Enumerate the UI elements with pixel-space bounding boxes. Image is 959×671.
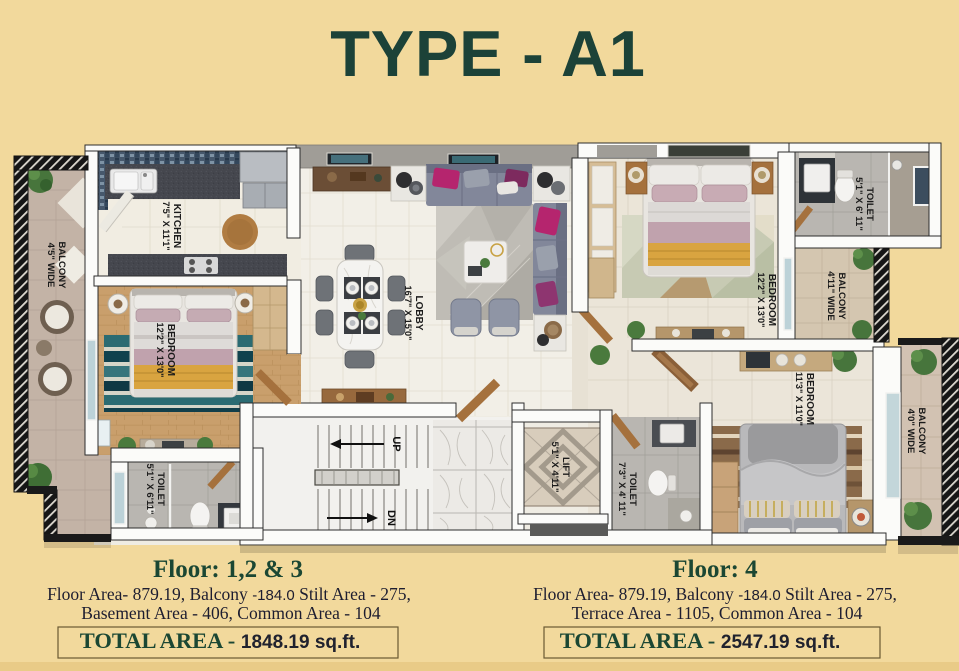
svg-text:Floor Area- 879.19, Balcony -1: Floor Area- 879.19, Balcony -184.0 Stilt… <box>533 584 897 604</box>
svg-text:Basement Area - 406, Common Ar: Basement Area - 406, Common Area - 104 <box>81 603 381 623</box>
svg-text:TOTAL AREA - 1848.19 sq.ft.: TOTAL AREA - 1848.19 sq.ft. <box>80 628 360 653</box>
svg-text:Floor: 4: Floor: 4 <box>672 556 758 583</box>
svg-text:BEDROOM11'3" X 11'0": BEDROOM11'3" X 11'0" <box>794 372 815 426</box>
svg-text:Floor: 1,2 & 3: Floor: 1,2 & 3 <box>153 556 303 583</box>
svg-text:BALCONY4'5" WIDE: BALCONY4'5" WIDE <box>45 242 67 290</box>
svg-text:TYPE - A1: TYPE - A1 <box>330 17 645 90</box>
svg-text:UP: UP <box>390 436 402 451</box>
svg-text:Terrace Area - 1105, Common Ar: Terrace Area - 1105, Common Area - 104 <box>572 603 863 623</box>
svg-text:BALCONY4'0" WIDE: BALCONY4'0" WIDE <box>905 408 927 456</box>
svg-text:BALCONY4'11" WIDE: BALCONY4'11" WIDE <box>825 271 847 321</box>
svg-text:BEDROOM12'2" X 13'0": BEDROOM12'2" X 13'0" <box>155 323 176 378</box>
svg-text:KITCHEN7'5" X 11'1": KITCHEN7'5" X 11'1" <box>161 201 182 250</box>
svg-text:BEDROOM12'2" X 13'0": BEDROOM12'2" X 13'0" <box>756 273 777 328</box>
svg-text:Floor Area- 879.19, Balcony -1: Floor Area- 879.19, Balcony -184.0 Stilt… <box>47 584 411 604</box>
svg-text:DN: DN <box>385 510 397 526</box>
svg-text:TOTAL AREA - 2547.19 sq.ft.: TOTAL AREA - 2547.19 sq.ft. <box>560 628 840 653</box>
